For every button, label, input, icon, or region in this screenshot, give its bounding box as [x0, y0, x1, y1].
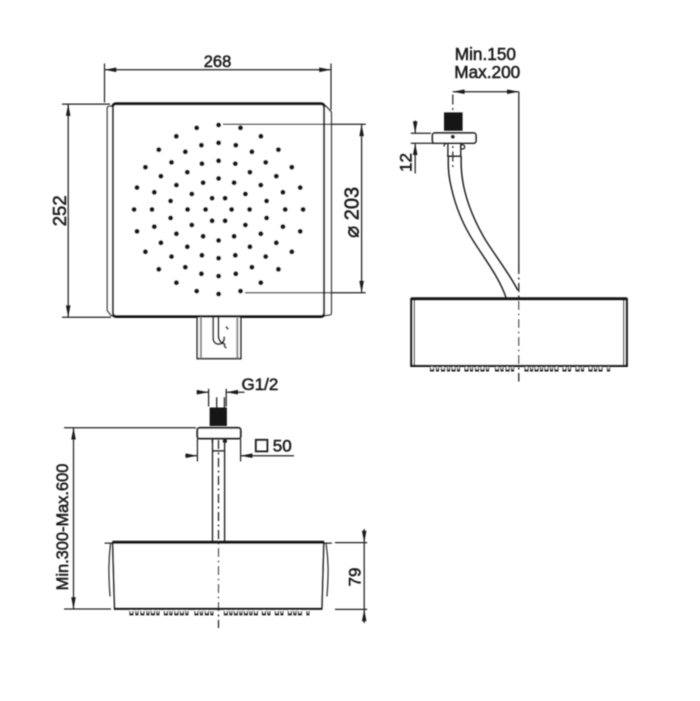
svg-text:79: 79 — [346, 568, 365, 587]
svg-text:268: 268 — [204, 53, 232, 71]
svg-text:12: 12 — [396, 153, 415, 172]
svg-text:50: 50 — [273, 436, 292, 455]
svg-text:Min.150: Min.150 — [455, 44, 516, 64]
svg-text:G1/2: G1/2 — [242, 375, 279, 394]
svg-text:Max.200: Max.200 — [454, 62, 520, 82]
svg-text:⌀ 203: ⌀ 203 — [341, 187, 363, 238]
svg-text:Min.300-Max.600: Min.300-Max.600 — [54, 464, 72, 591]
svg-text:252: 252 — [49, 195, 70, 226]
